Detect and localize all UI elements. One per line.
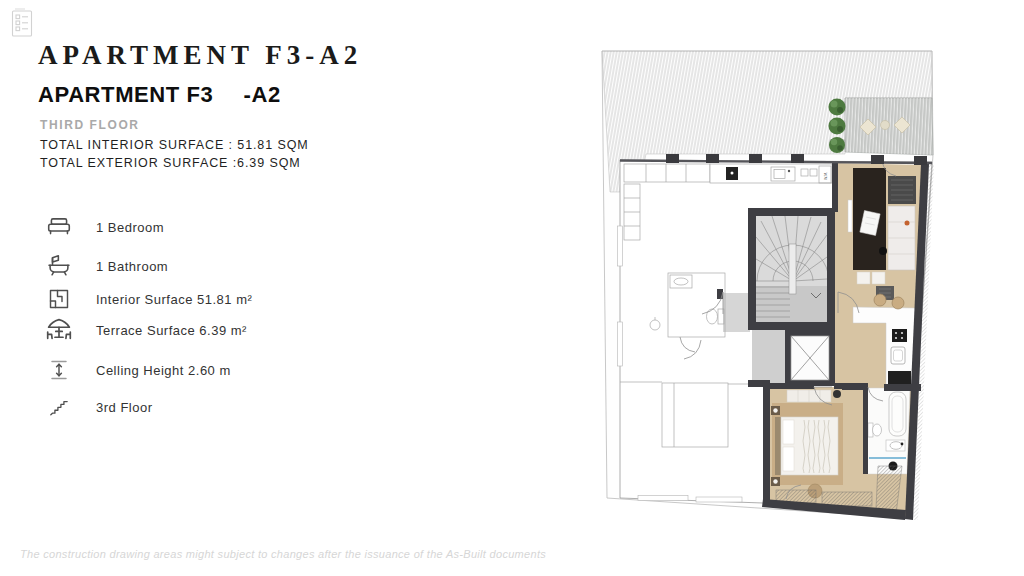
subtitle-unit: -A2 [243,82,280,108]
brochure-page: { "header": { "icon": "checklist-icon", … [0,0,1024,576]
bed-icon [44,215,74,239]
disclaimer-text: The construction drawing areas might sub… [20,548,546,560]
page-title: APARTMENT F3-A2 [38,40,362,71]
bedroom [771,390,843,498]
terrace-trees [829,99,846,154]
subtitle-name: APARTMENT F3 [38,82,213,108]
stairs-icon [44,397,74,417]
checklist-icon [9,7,36,43]
feature-label: Celling Height 2.60 m [96,363,231,378]
feature-label: 1 Bathroom [96,259,168,274]
feature-label: Interior Surface 51.81 m² [96,292,252,307]
bath-icon [44,253,74,279]
floor-label: THIRD FLOOR [40,118,140,132]
feature-floor-number: 3rd Floor [44,393,252,421]
feature-list: 1 Bedroom 1 Bathroom Interi [44,213,252,421]
page-subtitle: APARTMENT F3 -A2 [38,82,281,108]
elevator [785,330,835,386]
interior-surface-line: TOTAL INTERIOR SURFACE : 51.81 SQM [40,138,309,152]
feature-label: 1 Bedroom [96,220,164,235]
floor-plan: W.M. [580,30,1024,560]
height-icon [44,357,74,383]
feature-interior-surface: Interior Surface 51.81 m² [44,285,252,313]
wm-label: W.M. [824,172,828,180]
feature-label: 3rd Floor [96,400,153,415]
feature-label: Terrace Surface 6.39 m² [96,323,247,338]
terrace-icon [44,316,74,344]
floorplan-icon [44,287,74,311]
terrace [845,98,933,155]
feature-bathroom: 1 Bathroom [44,252,252,280]
feature-bedroom: 1 Bedroom [44,213,252,241]
feature-ceiling-height: Celling Height 2.60 m [44,356,252,384]
exterior-surface-line: TOTAL EXTERIOR SURFACE :6.39 SQM [40,156,301,170]
staircase [748,208,835,330]
feature-terrace-surface: Terrace Surface 6.39 m² [44,316,252,344]
